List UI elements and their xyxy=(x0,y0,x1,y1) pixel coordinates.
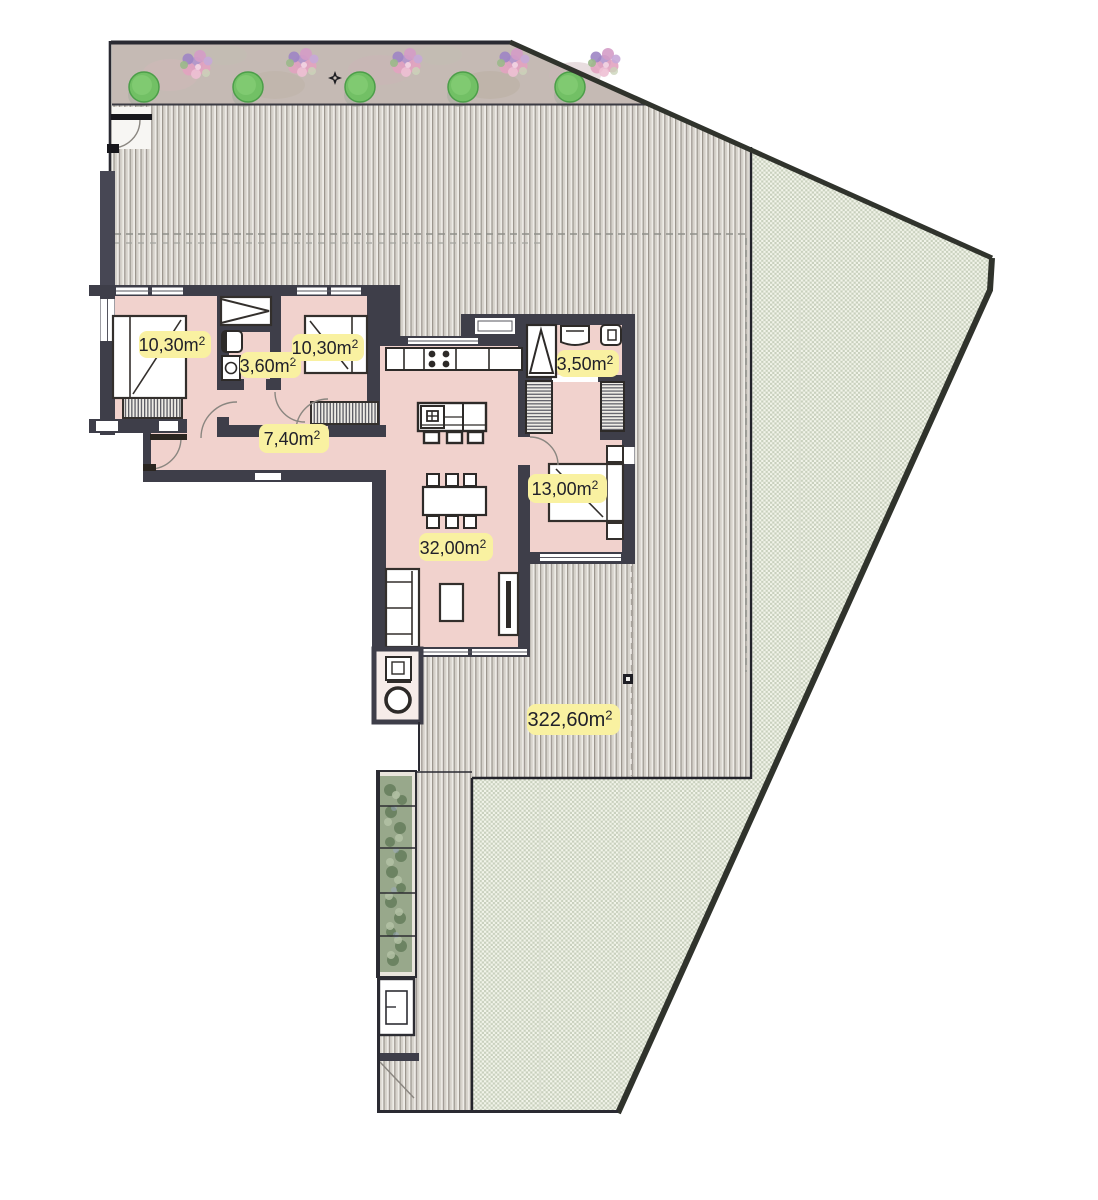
svg-text:3,60m2: 3,60m2 xyxy=(240,355,297,376)
svg-text:7,40m2: 7,40m2 xyxy=(264,428,321,449)
svg-text:10,30m2: 10,30m2 xyxy=(139,334,206,355)
svg-text:3,50m2: 3,50m2 xyxy=(557,353,614,374)
svg-text:10,30m2: 10,30m2 xyxy=(292,337,359,358)
svg-text:322,60m2: 322,60m2 xyxy=(527,708,612,732)
svg-text:13,00m2: 13,00m2 xyxy=(532,478,599,499)
svg-text:32,00m2: 32,00m2 xyxy=(420,537,487,558)
